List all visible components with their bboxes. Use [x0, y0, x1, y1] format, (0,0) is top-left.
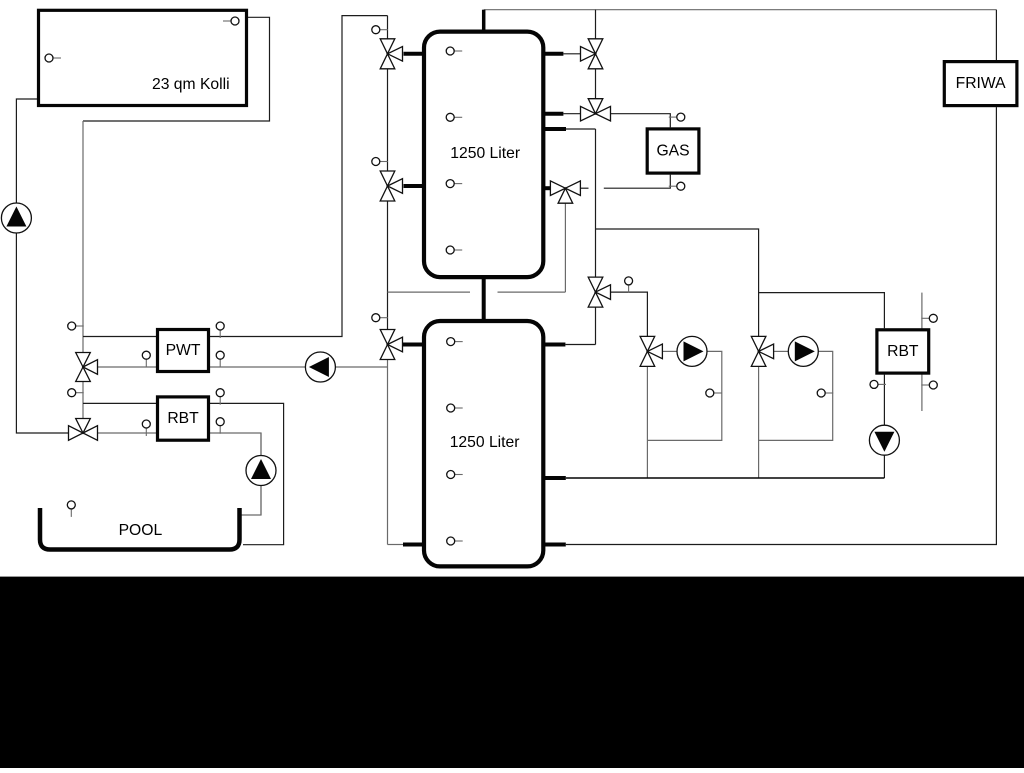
svg-text:POOL: POOL: [119, 522, 163, 539]
svg-text:FRIWA: FRIWA: [956, 75, 1006, 92]
svg-text:GAS: GAS: [656, 143, 689, 160]
svg-text:1250 Liter: 1250 Liter: [450, 145, 520, 162]
svg-text:1250 Liter: 1250 Liter: [450, 434, 520, 451]
svg-text:23 qm Kolli: 23 qm Kolli: [152, 76, 230, 93]
svg-text:PWT: PWT: [166, 342, 201, 359]
svg-text:RBT: RBT: [887, 343, 919, 360]
svg-text:RBT: RBT: [167, 410, 199, 427]
